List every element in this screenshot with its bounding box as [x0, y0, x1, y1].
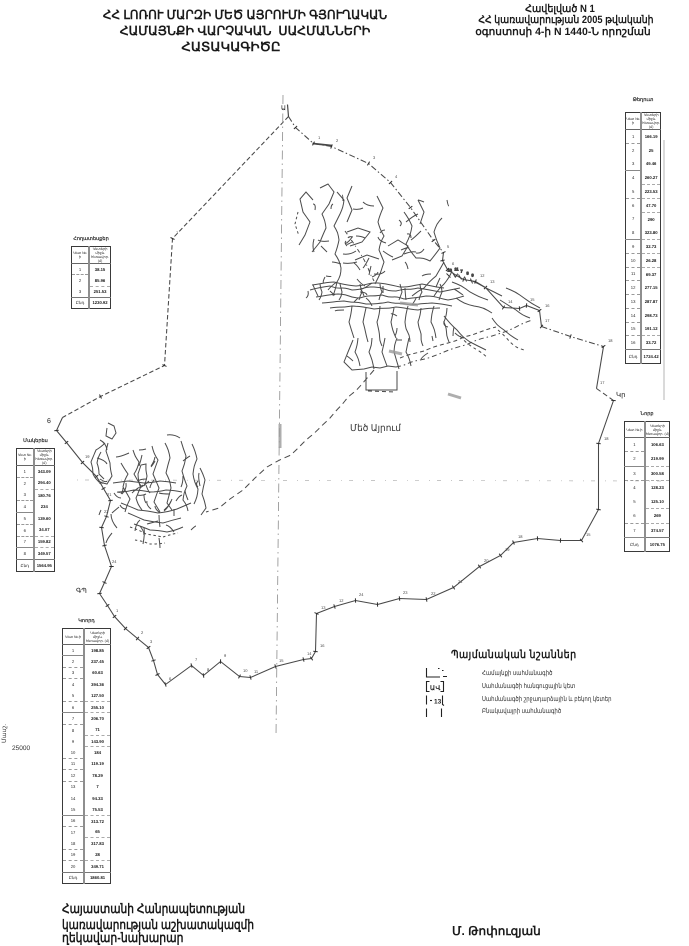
svg-text:17: 17	[545, 318, 550, 323]
svg-text:15: 15	[586, 532, 591, 537]
svg-text:8: 8	[207, 667, 210, 672]
svg-text:21: 21	[107, 492, 112, 497]
svg-text:20: 20	[99, 480, 104, 485]
svg-text:7: 7	[195, 657, 198, 662]
svg-text:16: 16	[545, 303, 550, 308]
svg-text:1: 1	[318, 135, 321, 140]
svg-text:3: 3	[373, 155, 376, 160]
svg-text:22: 22	[431, 591, 436, 596]
svg-text:12: 12	[480, 273, 485, 278]
svg-text:23: 23	[403, 590, 408, 595]
svg-text:Վ: Վ	[436, 685, 441, 692]
svg-text:21: 21	[458, 579, 463, 584]
svg-text:18: 18	[518, 534, 523, 539]
svg-text:15: 15	[279, 658, 284, 663]
svg-text:11: 11	[455, 268, 459, 272]
svg-text:15: 15	[530, 297, 535, 302]
svg-text:24: 24	[112, 559, 117, 564]
svg-text:19: 19	[85, 454, 90, 459]
svg-text:8: 8	[467, 272, 469, 276]
svg-text:2: 2	[141, 630, 144, 635]
svg-text:14: 14	[508, 299, 513, 304]
svg-text:9: 9	[472, 274, 474, 278]
svg-text:18: 18	[604, 436, 609, 441]
svg-text:11: 11	[254, 669, 259, 674]
svg-text:14: 14	[307, 651, 312, 656]
svg-text:1: 1	[116, 608, 119, 613]
svg-text:Ա: Ա	[281, 105, 286, 112]
svg-text:12: 12	[339, 598, 344, 603]
svg-text:9: 9	[224, 653, 227, 658]
svg-text:3: 3	[150, 639, 153, 644]
svg-text:19: 19	[505, 547, 510, 552]
svg-text:2: 2	[336, 138, 339, 143]
svg-text:20: 20	[484, 558, 489, 563]
svg-text:6: 6	[452, 261, 455, 266]
svg-text:24: 24	[359, 592, 364, 597]
svg-text:Կր: Կր	[616, 391, 626, 399]
svg-text:4: 4	[395, 174, 398, 179]
svg-text:13: 13	[490, 279, 495, 284]
svg-text:7: 7	[461, 270, 463, 274]
svg-text:13: 13	[434, 699, 442, 706]
svg-text:22: 22	[104, 509, 109, 514]
svg-text:17: 17	[600, 380, 605, 385]
svg-text:6: 6	[47, 418, 51, 425]
svg-text:18: 18	[608, 338, 613, 343]
svg-text:Ա: Ա	[430, 685, 435, 692]
svg-text:16: 16	[320, 643, 325, 648]
svg-text:1: 1	[176, 230, 179, 235]
svg-text:10: 10	[243, 668, 248, 673]
svg-text:13: 13	[321, 605, 326, 610]
svg-text:5: 5	[447, 244, 450, 249]
svg-text:ԳՊ: ԳՊ	[76, 587, 87, 595]
